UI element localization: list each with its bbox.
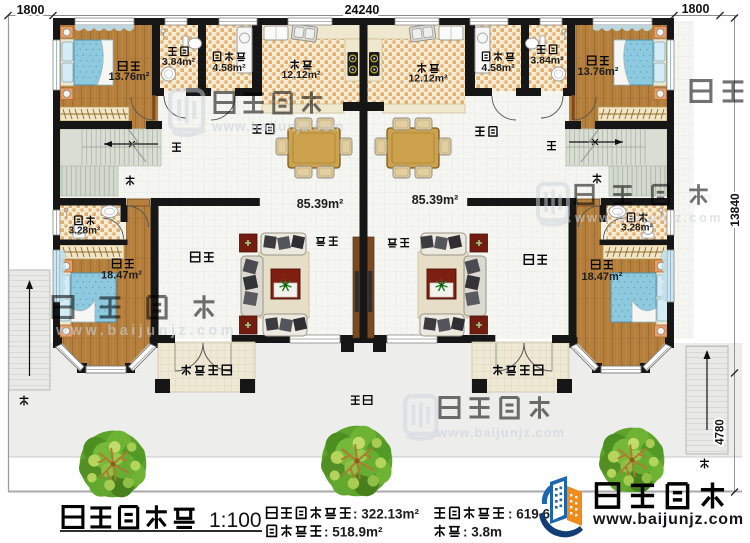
svg-text:1800: 1800 — [17, 3, 45, 17]
svg-text:13840: 13840 — [728, 193, 742, 227]
svg-text:3.84m²: 3.84m² — [530, 55, 564, 67]
svg-text:: 518.9m²: : 518.9m² — [324, 525, 383, 540]
svg-text:4780: 4780 — [715, 419, 727, 445]
svg-text:1800: 1800 — [682, 2, 710, 16]
svg-text:85.39m²: 85.39m² — [297, 197, 344, 211]
svg-text:4.58m²: 4.58m² — [481, 62, 515, 74]
svg-text:www.baijunjz.com: www.baijunjz.com — [592, 511, 744, 528]
svg-text:12.12m²: 12.12m² — [281, 69, 321, 81]
svg-text:85.39m²: 85.39m² — [412, 193, 459, 207]
svg-text:1:100: 1:100 — [209, 509, 262, 532]
svg-text:: 3.8m: : 3.8m — [463, 525, 502, 540]
svg-text:: 322.13m²: : 322.13m² — [353, 507, 420, 522]
svg-text:3.84m²: 3.84m² — [162, 56, 196, 68]
svg-text:3.28m²: 3.28m² — [69, 226, 101, 237]
svg-text:13.76m²: 13.76m² — [578, 66, 619, 78]
svg-text:4.58m²: 4.58m² — [212, 62, 246, 74]
svg-text:13.76m²: 13.76m² — [109, 71, 150, 83]
svg-text:www.baijunjz.com: www.baijunjz.com — [574, 211, 723, 225]
svg-text:18.47m²: 18.47m² — [582, 271, 623, 283]
svg-text:www.baijunjz.com: www.baijunjz.com — [436, 425, 565, 440]
svg-text:12.12m²: 12.12m² — [408, 73, 448, 85]
svg-text:24240: 24240 — [345, 3, 380, 17]
svg-text:www.baijunjz.com: www.baijunjz.com — [211, 119, 345, 134]
svg-text:18.47m²: 18.47m² — [101, 270, 142, 282]
svg-text:www.baijunjz.com: www.baijunjz.com — [55, 323, 237, 339]
